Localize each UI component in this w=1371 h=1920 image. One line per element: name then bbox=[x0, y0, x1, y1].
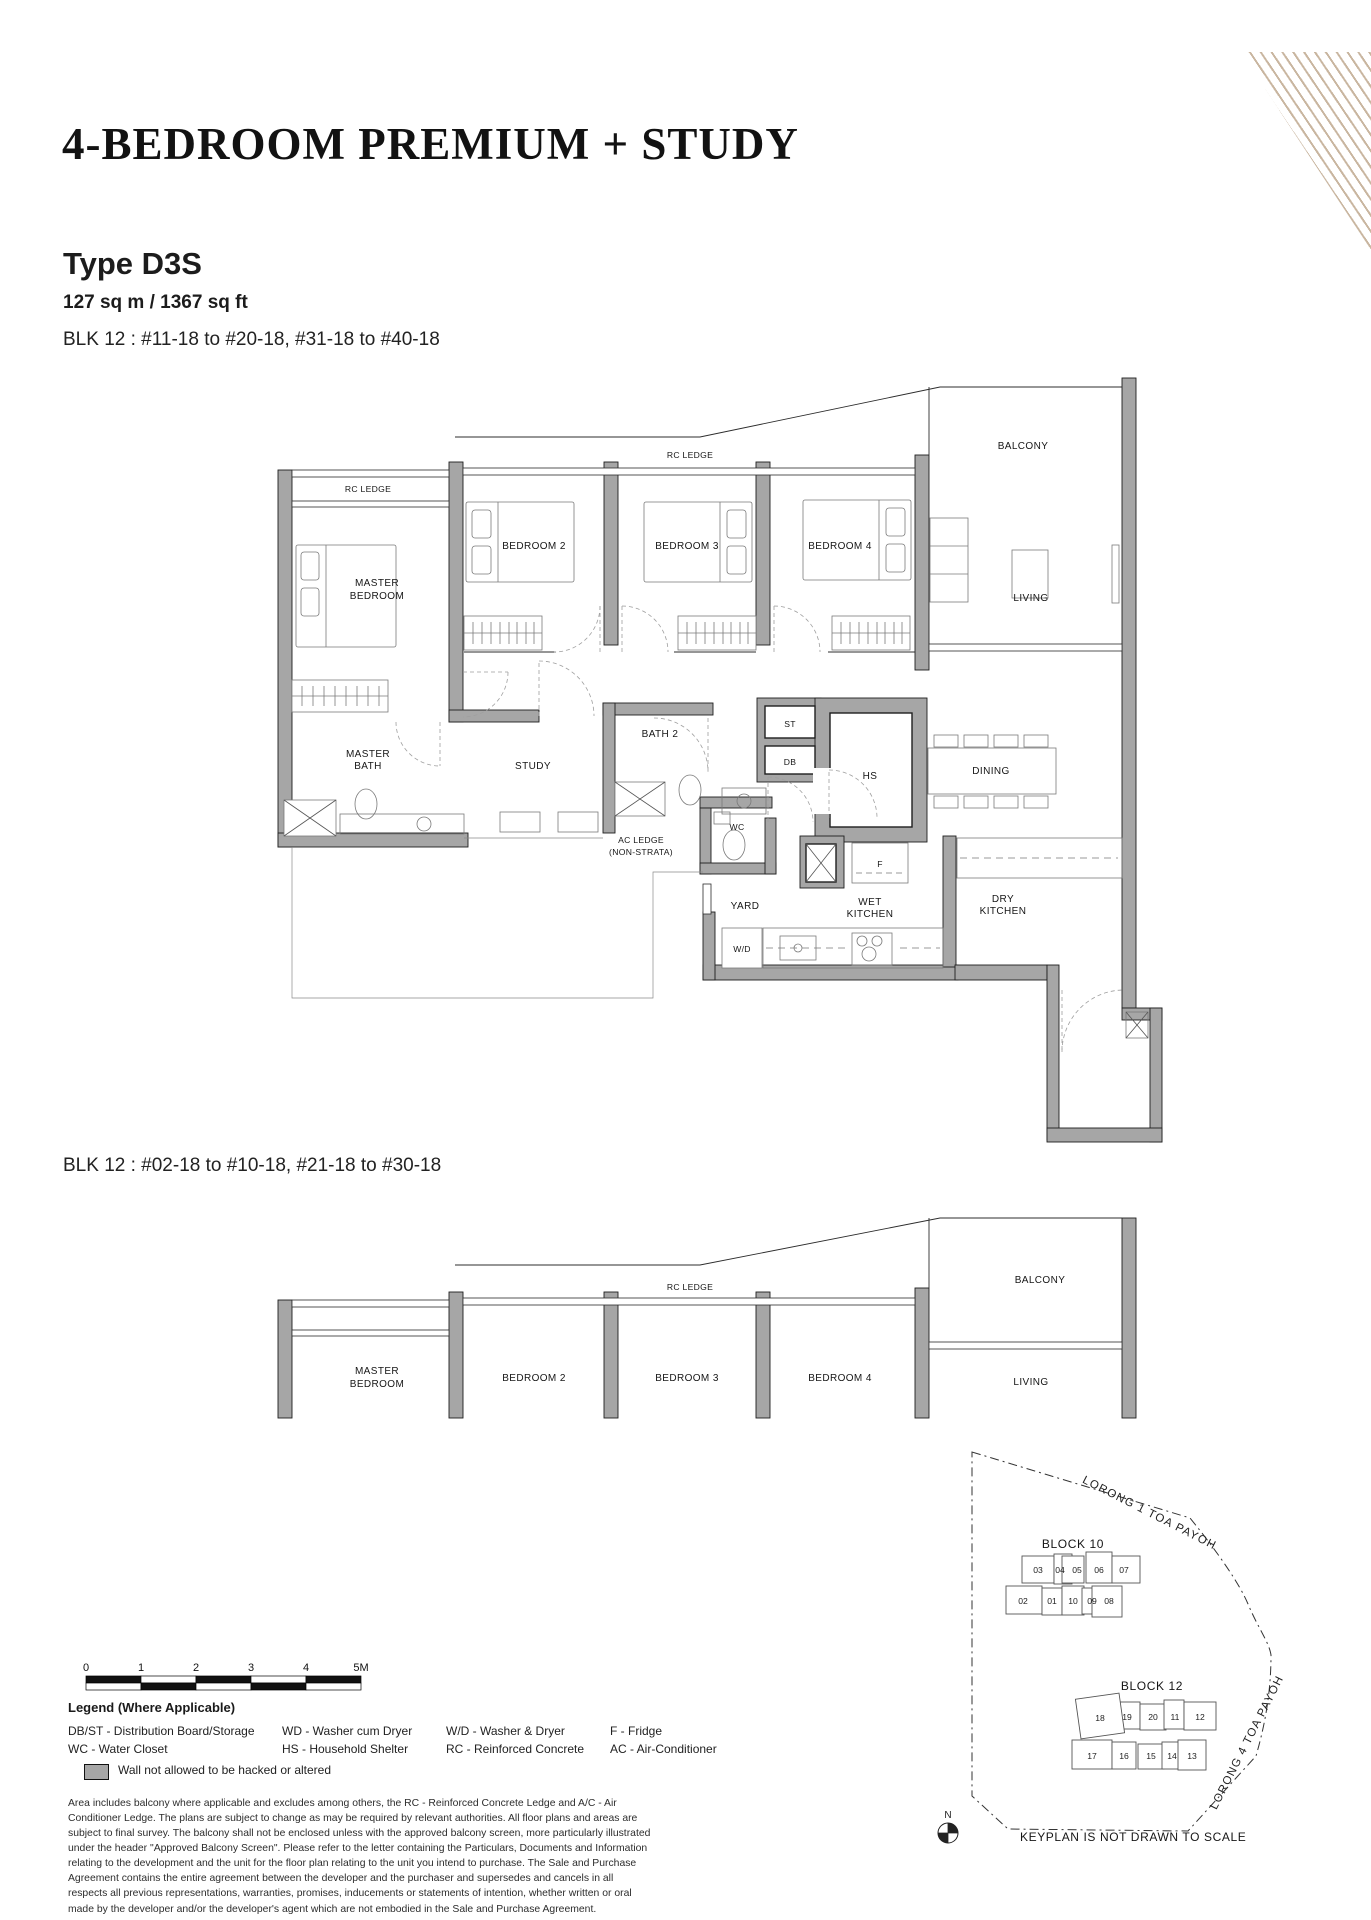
unit-16: 16 bbox=[1119, 1751, 1129, 1761]
room-label-living: LIVING bbox=[1013, 593, 1048, 604]
room-label-st: ST bbox=[784, 719, 796, 729]
legend-heading: Legend (Where Applicable) bbox=[68, 1700, 235, 1715]
unit-13: 13 bbox=[1187, 1751, 1197, 1761]
furniture bbox=[284, 500, 1148, 1038]
room-label-bedroom3: BEDROOM 3 bbox=[655, 541, 719, 552]
floorplan-brochure-page: { "header": { "title": "4-BEDROOM PREMIU… bbox=[0, 0, 1371, 1920]
legend-column-2: WD - Washer cum Dryer HS - Household She… bbox=[282, 1722, 412, 1758]
keyplan: LORONG 1 TOA PAYOH LORONG 4 TOA PAYOH BL… bbox=[900, 1440, 1371, 1870]
room-label-dry-kitchen-2: KITCHEN bbox=[980, 906, 1027, 917]
room-label-bedroom3: BEDROOM 3 bbox=[655, 1373, 719, 1384]
unit-02: 02 bbox=[1018, 1596, 1028, 1606]
room-label-bedroom4: BEDROOM 4 bbox=[808, 1373, 872, 1384]
scale-2: 2 bbox=[193, 1662, 199, 1674]
room-label-rc-ledge-master: RC LEDGE bbox=[345, 484, 391, 494]
unit-03: 03 bbox=[1033, 1565, 1043, 1575]
wall-note: Wall not allowed to be hacked or altered bbox=[118, 1763, 331, 1777]
unit-20: 20 bbox=[1148, 1712, 1158, 1722]
room-label-study: STUDY bbox=[515, 761, 551, 772]
legend-column-1: DB/ST - Distribution Board/Storage WC - … bbox=[68, 1722, 255, 1758]
scale-segments bbox=[86, 1676, 361, 1690]
legend-item: WD - Washer cum Dryer bbox=[282, 1722, 412, 1740]
room-label-bath2: BATH 2 bbox=[642, 729, 679, 740]
unit-11: 11 bbox=[1171, 1712, 1180, 1722]
wall-swatch-icon bbox=[84, 1764, 109, 1780]
room-label-master-bedroom-2: BEDROOM bbox=[350, 1379, 404, 1390]
room-label-ac-ledge-2: (NON-STRATA) bbox=[609, 847, 673, 857]
room-label-rc-ledge: RC LEDGE bbox=[667, 450, 713, 460]
legend-column-3: W/D - Washer & Dryer RC - Reinforced Con… bbox=[446, 1722, 584, 1758]
keyplan-note: KEYPLAN IS NOT DRAWN TO SCALE bbox=[1020, 1830, 1246, 1844]
scale-1: 1 bbox=[138, 1662, 144, 1674]
legend-item: W/D - Washer & Dryer bbox=[446, 1722, 584, 1740]
north-arrow-icon: N bbox=[938, 1810, 958, 1843]
room-label-wet-kitchen-2: KITCHEN bbox=[847, 909, 894, 920]
room-label-master-bedroom: MASTER bbox=[355, 578, 399, 589]
unit-06: 06 bbox=[1094, 1565, 1104, 1575]
room-label-ac-ledge: AC LEDGE bbox=[618, 835, 664, 845]
legend-item: RC - Reinforced Concrete bbox=[446, 1740, 584, 1758]
legend-item: HS - Household Shelter bbox=[282, 1740, 412, 1758]
block12-label: BLOCK 12 bbox=[1121, 1679, 1183, 1693]
unit-04: 04 bbox=[1055, 1565, 1065, 1575]
road-label-lorong4: LORONG 4 TOA PAYOH bbox=[1208, 1674, 1286, 1812]
legend-item: AC - Air-Conditioner bbox=[610, 1740, 717, 1758]
room-label-rc-ledge: RC LEDGE bbox=[667, 1282, 713, 1292]
partial-floor-plan: RC LEDGE MASTER BEDROOM BEDROOM 2 BEDROO… bbox=[0, 1190, 1371, 1420]
unit-01: 01 bbox=[1047, 1596, 1057, 1606]
walls bbox=[278, 1218, 1136, 1418]
disclaimer-text: Area includes balcony where applicable a… bbox=[68, 1796, 654, 1917]
legend-item: DB/ST - Distribution Board/Storage bbox=[68, 1722, 255, 1740]
room-label-wc: WC bbox=[730, 822, 745, 832]
scale-bar: 0 1 2 3 4 5M bbox=[60, 1650, 380, 1700]
block10-label: BLOCK 10 bbox=[1042, 1537, 1104, 1551]
unit-14: 14 bbox=[1167, 1751, 1177, 1761]
room-label-balcony: BALCONY bbox=[998, 441, 1049, 452]
room-label-master-bath: MASTER bbox=[346, 749, 390, 760]
room-label-bedroom2: BEDROOM 2 bbox=[502, 1373, 566, 1384]
room-label-wet-kitchen: WET bbox=[858, 897, 881, 908]
room-label-balcony: BALCONY bbox=[1015, 1275, 1066, 1286]
room-label-fridge: F bbox=[877, 859, 883, 869]
room-label-db: DB bbox=[784, 757, 797, 767]
room-label-bedroom2: BEDROOM 2 bbox=[502, 541, 566, 552]
svg-text:N: N bbox=[944, 1810, 951, 1821]
door-arcs bbox=[396, 606, 1124, 1052]
legend-item: WC - Water Closet bbox=[68, 1740, 255, 1758]
main-floor-plan: RC LEDGE RC LEDGE MASTER BEDROOM BEDROOM… bbox=[0, 0, 1371, 1190]
legend-item: F - Fridge bbox=[610, 1722, 717, 1740]
unit-05: 05 bbox=[1072, 1565, 1082, 1575]
scale-3: 3 bbox=[248, 1662, 254, 1674]
room-label-living: LIVING bbox=[1013, 1377, 1048, 1388]
room-label-hs: HS bbox=[863, 771, 878, 782]
room-label-master-bedroom: MASTER bbox=[355, 1366, 399, 1377]
unit-08: 08 bbox=[1104, 1596, 1114, 1606]
legend-column-4: F - Fridge AC - Air-Conditioner bbox=[610, 1722, 717, 1758]
unit-18-highlighted: 18 bbox=[1095, 1713, 1105, 1723]
block10-buildings bbox=[1006, 1552, 1140, 1617]
unit-10: 10 bbox=[1068, 1596, 1078, 1606]
room-label-yard: YARD bbox=[731, 901, 760, 912]
unit-15: 15 bbox=[1146, 1751, 1156, 1761]
unit-09: 09 bbox=[1087, 1596, 1097, 1606]
room-label-bedroom4: BEDROOM 4 bbox=[808, 541, 872, 552]
household-shelter-room bbox=[830, 713, 912, 827]
room-label-dining: DINING bbox=[972, 766, 1009, 777]
unit-17: 17 bbox=[1087, 1751, 1097, 1761]
room-label-master-bedroom-2: BEDROOM bbox=[350, 591, 404, 602]
unit-19: 19 bbox=[1122, 1712, 1132, 1722]
unit-12: 12 bbox=[1195, 1712, 1205, 1722]
room-label-dry-kitchen: DRY bbox=[992, 894, 1014, 905]
room-label-wd: W/D bbox=[733, 944, 751, 954]
scale-5m: 5M bbox=[353, 1662, 368, 1674]
scale-4: 4 bbox=[303, 1662, 309, 1674]
unit-07: 07 bbox=[1119, 1565, 1129, 1575]
room-label-master-bath-2: BATH bbox=[354, 761, 382, 772]
scale-0: 0 bbox=[83, 1662, 89, 1674]
